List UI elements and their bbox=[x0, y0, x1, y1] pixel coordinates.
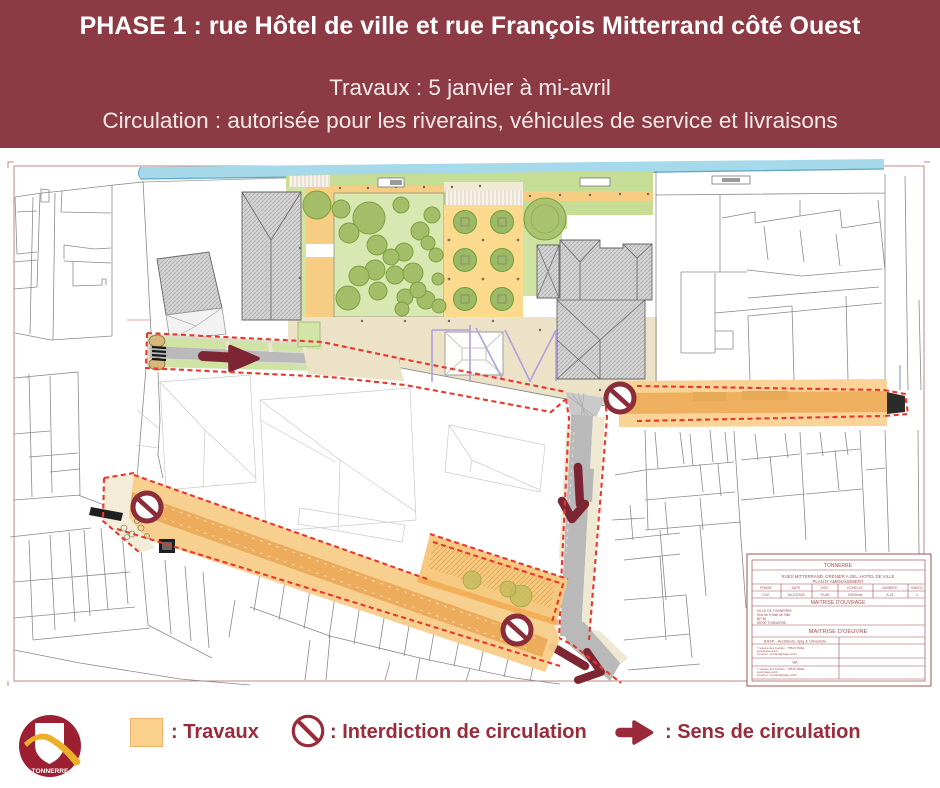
svg-text:Courriel : contact@basp.archi: Courriel : contact@basp.archi bbox=[757, 673, 797, 677]
svg-text:DATE: DATE bbox=[792, 586, 802, 590]
svg-text:MAITRISE D'OEUVRE: MAITRISE D'OEUVRE bbox=[809, 629, 868, 635]
svg-text:PLAN D' AMENAGEMENT: PLAN D' AMENAGEMENT bbox=[813, 579, 864, 584]
svg-text:BA: BA bbox=[792, 661, 798, 665]
svg-text:DCE: DCE bbox=[762, 593, 770, 597]
svg-text:PHASE: PHASE bbox=[760, 586, 772, 590]
svg-text:DOC: DOC bbox=[821, 586, 829, 590]
svg-text:1/500ème: 1/500ème bbox=[847, 593, 862, 597]
svg-text:TONNERRE: TONNERRE bbox=[824, 563, 853, 569]
svg-text:16/12/2025: 16/12/2025 bbox=[788, 593, 805, 597]
svg-text:Courriel : contact@basp.archi: Courriel : contact@basp.archi bbox=[757, 652, 797, 656]
svg-text:ECHELLE: ECHELLE bbox=[847, 586, 863, 590]
svg-text:MAITRISE D'OUVRAGE: MAITRISE D'OUVRAGE bbox=[811, 600, 866, 606]
svg-text:NUMERO: NUMERO bbox=[882, 586, 897, 590]
svg-text:A-01: A-01 bbox=[886, 593, 893, 597]
svg-text:INDICE: INDICE bbox=[911, 586, 923, 590]
svg-text:PLAN: PLAN bbox=[821, 593, 830, 597]
svg-text:89700 TONNERRE: 89700 TONNERRE bbox=[757, 621, 787, 625]
svg-text:TONNERRE: TONNERRE bbox=[32, 768, 69, 775]
svg-text:BASP - Architecte dplg & Urban: BASP - Architecte dplg & Urbaniste bbox=[764, 639, 827, 644]
